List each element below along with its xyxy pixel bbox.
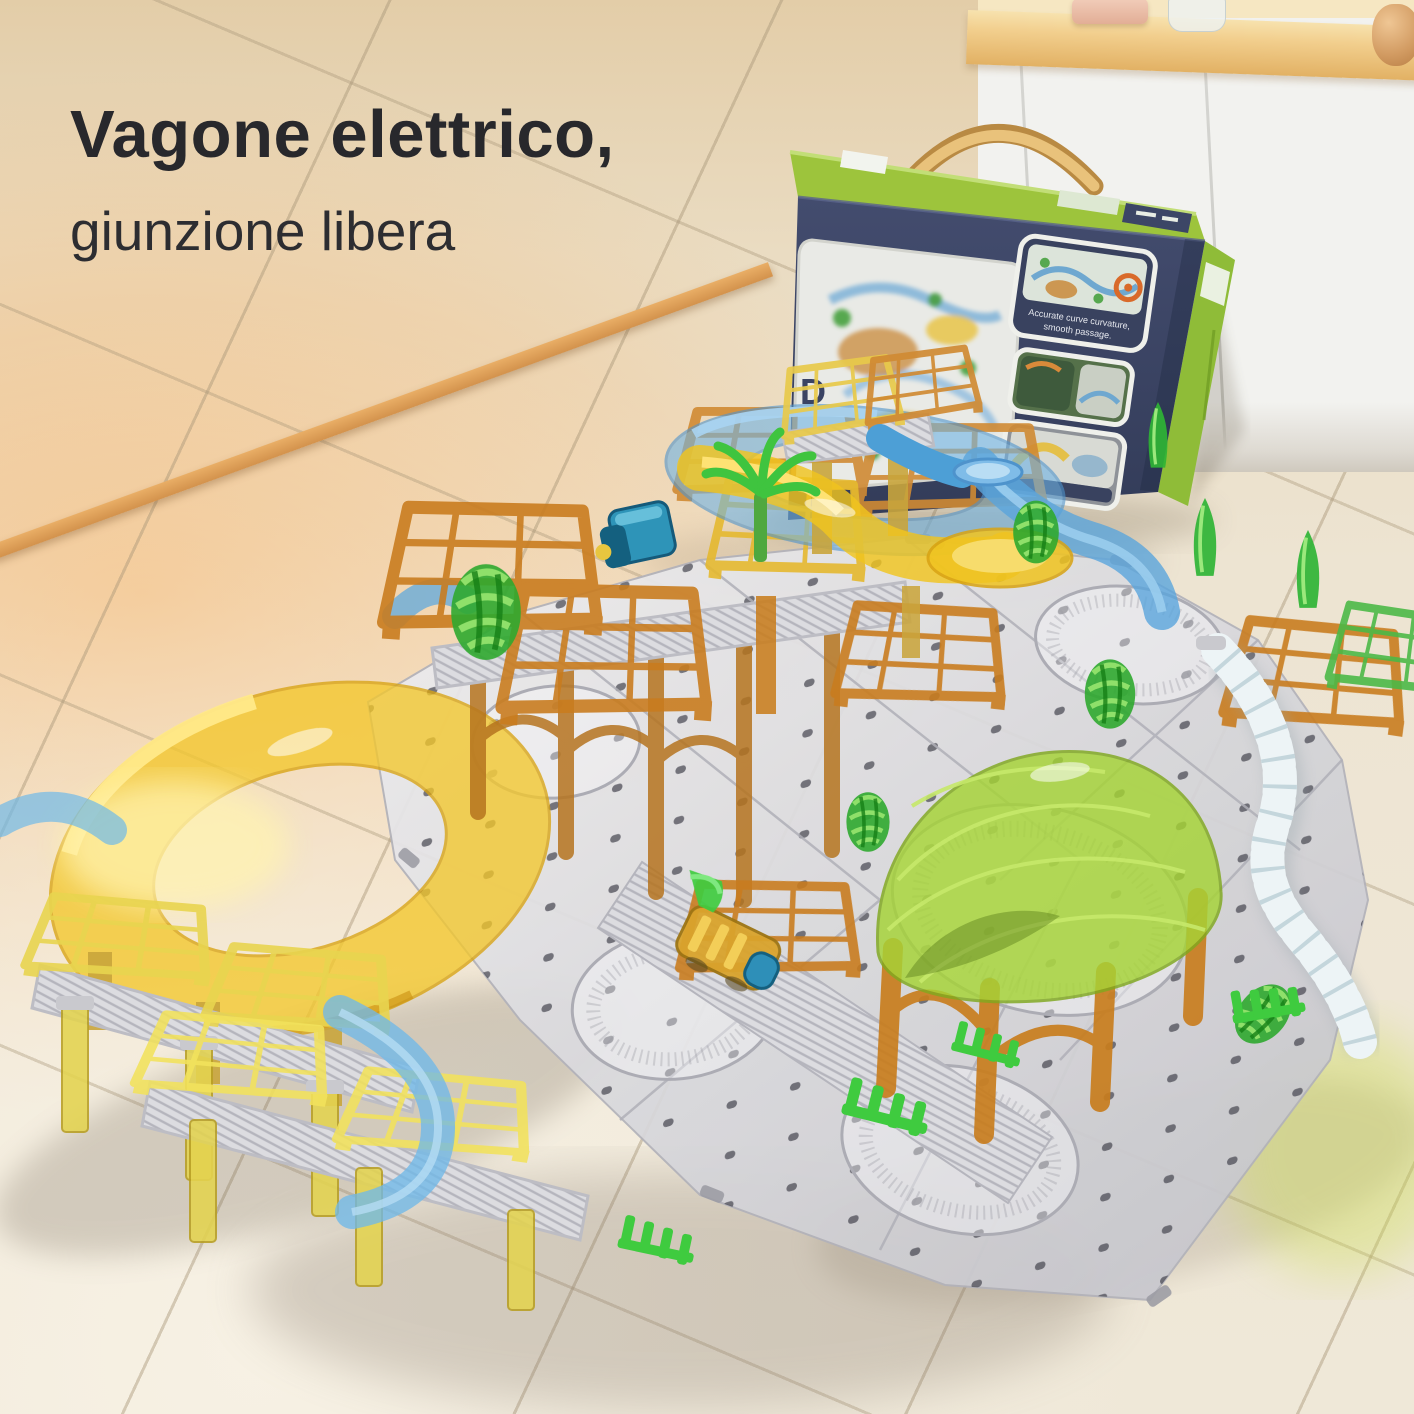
box-inset-1: Accurate curve curvature, smooth passage… <box>1009 234 1158 352</box>
bush <box>1085 659 1135 728</box>
box-inset-2 <box>1008 348 1133 426</box>
headline: Vagone elettrico, giunzione libera <box>70 96 615 263</box>
product-photo-scene: D Accurate curve curvature, smooth passa… <box>0 0 1414 1414</box>
bush <box>846 792 889 851</box>
headline-line-2: giunzione libera <box>70 199 615 263</box>
blue-curve-left <box>0 807 112 830</box>
bush <box>1013 501 1059 564</box>
tree <box>1297 530 1319 608</box>
headline-line-1: Vagone elettrico, <box>70 96 615 173</box>
bush <box>451 564 521 660</box>
